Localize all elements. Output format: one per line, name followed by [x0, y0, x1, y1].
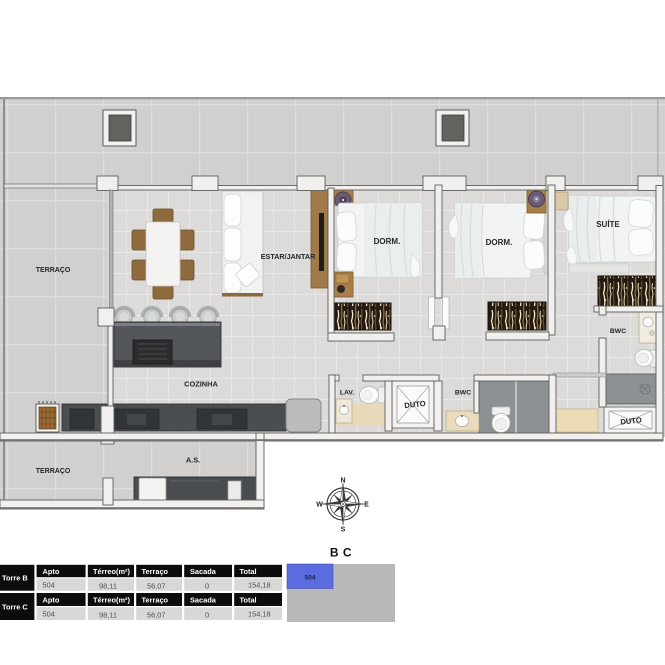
svg-text:Apto: Apto — [43, 596, 60, 605]
svg-text:DORM.: DORM. — [486, 238, 513, 247]
svg-text:TERRAÇO: TERRAÇO — [36, 468, 71, 475]
svg-text:56,07: 56,07 — [147, 610, 166, 619]
svg-text:COZINHA: COZINHA — [184, 380, 218, 389]
svg-text:154,18: 154,18 — [248, 609, 271, 618]
svg-text:56,07: 56,07 — [147, 581, 166, 590]
svg-text:Terraço: Terraço — [142, 596, 169, 605]
svg-text:E: E — [364, 501, 369, 508]
svg-text:A.S.: A.S. — [186, 456, 200, 465]
svg-text:SUÍTE: SUÍTE — [596, 220, 620, 229]
svg-text:Sacada: Sacada — [190, 567, 217, 576]
svg-text:Total: Total — [240, 596, 257, 605]
svg-text:N: N — [340, 478, 345, 485]
svg-text:ESTAR/JANTAR: ESTAR/JANTAR — [261, 252, 316, 261]
svg-text:BWC: BWC — [610, 328, 626, 335]
svg-text:Térreo(m²): Térreo(m²) — [93, 596, 130, 605]
svg-text:W: W — [316, 501, 323, 508]
svg-text:B C: B C — [330, 546, 352, 560]
svg-text:Torre C: Torre C — [2, 603, 28, 612]
svg-text:154,18: 154,18 — [248, 580, 271, 589]
svg-text:98,11: 98,11 — [99, 581, 117, 590]
svg-text:DORM.: DORM. — [374, 237, 401, 246]
svg-text:Terraço: Terraço — [142, 567, 169, 576]
svg-text:Sacada: Sacada — [190, 596, 217, 605]
svg-text:LAV.: LAV. — [340, 390, 354, 397]
svg-text:TERRAÇO: TERRAÇO — [36, 267, 71, 274]
svg-text:504: 504 — [304, 575, 315, 582]
svg-text:BWC: BWC — [455, 390, 471, 397]
svg-text:Apto: Apto — [43, 567, 60, 576]
svg-text:S: S — [341, 527, 346, 534]
svg-text:0: 0 — [205, 581, 209, 590]
svg-text:504: 504 — [43, 580, 55, 589]
svg-text:98,11: 98,11 — [99, 610, 117, 619]
svg-text:Total: Total — [240, 567, 257, 576]
svg-text:0: 0 — [205, 610, 209, 619]
svg-text:504: 504 — [43, 609, 55, 618]
svg-text:Torre B: Torre B — [2, 574, 28, 583]
svg-text:Térreo(m²): Térreo(m²) — [93, 567, 130, 576]
